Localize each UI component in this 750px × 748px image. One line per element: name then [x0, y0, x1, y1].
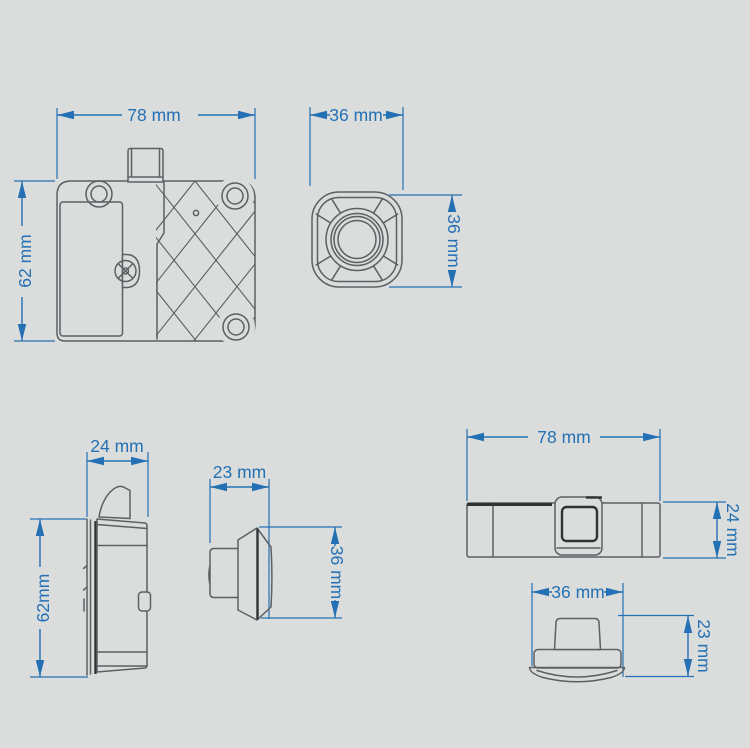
- latch-fin: [99, 486, 130, 518]
- sensor-top-depth-label: 23 mm: [694, 619, 714, 672]
- back-plate: [87, 519, 91, 675]
- dimension-arrow-right: [252, 483, 269, 491]
- dimension-arrow-left: [467, 433, 484, 441]
- sensor-top-base-inner-curve: [537, 671, 617, 678]
- dimension-arrow-up: [331, 527, 339, 544]
- dimension-drawing-page: 78 mm 62 mm: [0, 0, 750, 748]
- dimension-arrow-right: [238, 111, 255, 119]
- dimension-line: [40, 461, 148, 677]
- sensor-flange-profile: [238, 528, 272, 620]
- dimension-arrow-right: [386, 111, 403, 119]
- dimension-arrow-down: [36, 660, 44, 677]
- plate-boundary-line: [157, 182, 164, 339]
- dimension-line: [210, 487, 335, 618]
- sensor-side-height-label: 36 mm: [327, 546, 347, 599]
- dimension-arrow-left: [210, 483, 227, 491]
- technical-drawing: 78 mm 62 mm: [0, 0, 750, 748]
- dimension-arrow-up: [448, 195, 456, 212]
- side-clip-notch: [139, 592, 151, 611]
- sensor-mounting-post: [210, 549, 238, 598]
- sensor-side-width-label: 23 mm: [213, 462, 266, 482]
- sensor-ring-outer: [326, 209, 388, 271]
- fingerprint-sensor-side-view: 23 mm 36 mm: [209, 462, 347, 620]
- back-plate-ticks: [84, 566, 87, 611]
- dimension-arrow-left: [310, 111, 327, 119]
- lock-side-width-label: 24 mm: [90, 436, 143, 456]
- dimension-arrow-right: [131, 457, 148, 465]
- dimension-arrow-up: [18, 181, 26, 198]
- sensor-corner-spokes: [316, 199, 397, 280]
- lock-side-height-label: 62mm: [33, 574, 53, 623]
- dimension-arrow-left: [87, 457, 104, 465]
- dimension-arrow-up: [36, 519, 44, 536]
- lock-top-width-label: 78 mm: [537, 427, 590, 447]
- dimension-arrow-down: [331, 601, 339, 618]
- dimension-arrow-down: [18, 324, 26, 341]
- dimension-arrow-down: [684, 659, 692, 676]
- fingerprint-sensor-top-view: 36 mm 23 mm: [530, 582, 715, 682]
- dimension-arrow-up: [713, 502, 721, 519]
- dimension-extension-line: [30, 452, 148, 677]
- dimension-arrow-right: [643, 433, 660, 441]
- dimension-arrow-up: [684, 616, 692, 633]
- sensor-front-width-label: 36 mm: [329, 105, 382, 125]
- lock-side-view: 24 mm 62mm: [30, 436, 151, 677]
- sensor-top-width-label: 36 mm: [551, 582, 604, 602]
- battery-panel-plate: [60, 202, 123, 336]
- dimension-extension-line: [14, 108, 255, 341]
- fingerprint-window: [338, 221, 376, 259]
- sensor-top-post: [555, 619, 601, 650]
- screw-hole-top-left-inner: [91, 186, 107, 202]
- sensor-top-flange: [534, 650, 621, 669]
- dimension-arrow-left: [532, 588, 549, 596]
- sensor-ring: [331, 214, 383, 266]
- knurled-pattern: [25, 181, 365, 342]
- lock-top-view: 78 mm 24 mm: [467, 427, 743, 558]
- dimension-arrow-right: [606, 588, 623, 596]
- lock-top-depth-label: 24 mm: [723, 503, 743, 556]
- sensor-front-height-label: 36 mm: [444, 214, 464, 267]
- pin-hole-clearance: [190, 207, 202, 219]
- dimension-arrow-left: [57, 111, 74, 119]
- sensor-top-base-band: [530, 668, 625, 682]
- fingerprint-sensor-front-view: 36 mm 36 mm: [310, 105, 464, 287]
- sensor-ring-inner: [334, 217, 380, 263]
- sensor-housing-rim: [318, 198, 397, 282]
- lock-front-width-label: 78 mm: [127, 105, 180, 125]
- dimension-arrow-down: [713, 541, 721, 558]
- screw-hole-top-left: [86, 181, 112, 207]
- lock-front-height-label: 62 mm: [15, 234, 35, 287]
- dimension-arrow-down: [448, 270, 456, 287]
